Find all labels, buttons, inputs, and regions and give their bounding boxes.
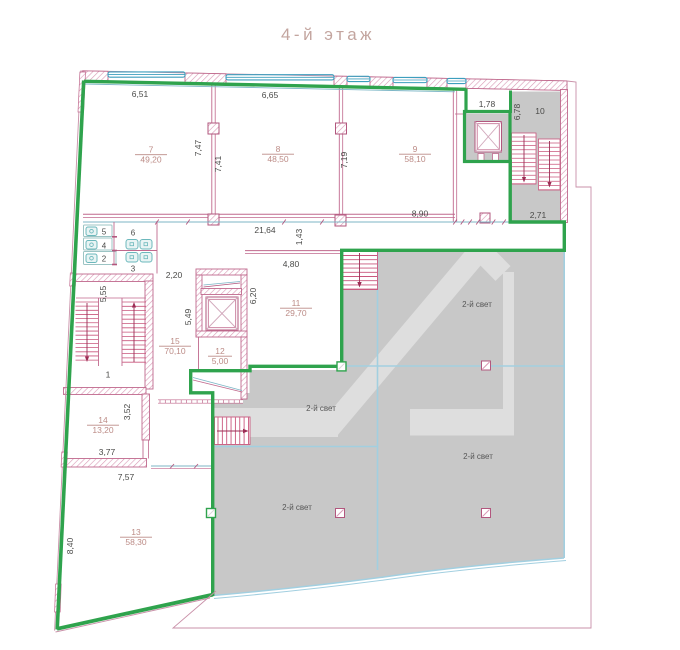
svg-text:8,90: 8,90 [412, 209, 429, 219]
svg-text:2-й свет: 2-й свет [282, 503, 312, 512]
svg-text:8,40: 8,40 [65, 537, 75, 554]
svg-text:12: 12 [215, 346, 225, 356]
svg-text:13: 13 [131, 527, 141, 537]
svg-text:6,20: 6,20 [248, 287, 258, 304]
svg-text:9: 9 [413, 144, 418, 154]
svg-text:6,51: 6,51 [132, 89, 149, 99]
svg-text:14: 14 [98, 415, 108, 425]
svg-text:4-й этаж: 4-й этаж [281, 25, 375, 44]
svg-text:1: 1 [106, 370, 111, 380]
svg-text:48,50: 48,50 [267, 154, 289, 164]
svg-text:11: 11 [292, 298, 301, 308]
svg-text:10: 10 [535, 106, 545, 116]
svg-text:58,30: 58,30 [125, 537, 147, 547]
svg-text:7,57: 7,57 [118, 472, 135, 482]
svg-text:15: 15 [170, 336, 180, 346]
svg-text:5,55: 5,55 [98, 285, 108, 302]
svg-text:6,78: 6,78 [512, 103, 522, 120]
svg-text:5: 5 [102, 228, 107, 237]
svg-text:2: 2 [102, 255, 107, 264]
svg-text:7,19: 7,19 [339, 151, 349, 168]
svg-text:5,00: 5,00 [212, 356, 229, 366]
svg-text:70,10: 70,10 [164, 346, 186, 356]
svg-text:7: 7 [149, 145, 154, 155]
svg-text:3,52: 3,52 [122, 403, 132, 420]
svg-text:3: 3 [131, 265, 136, 274]
svg-text:1,78: 1,78 [479, 99, 496, 109]
svg-text:4: 4 [102, 242, 107, 251]
svg-text:6,65: 6,65 [262, 90, 279, 100]
svg-text:7,41: 7,41 [213, 155, 223, 172]
svg-text:6: 6 [131, 229, 136, 238]
svg-text:2-й свет: 2-й свет [463, 452, 493, 461]
svg-text:49,20: 49,20 [140, 155, 162, 165]
svg-text:2,71: 2,71 [530, 210, 547, 220]
svg-text:5,49: 5,49 [183, 308, 193, 325]
svg-text:58,10: 58,10 [404, 154, 426, 164]
svg-text:1,43: 1,43 [294, 228, 304, 245]
svg-text:4,80: 4,80 [283, 259, 300, 269]
svg-text:3,77: 3,77 [99, 447, 116, 457]
svg-text:2-й свет: 2-й свет [462, 300, 492, 309]
svg-text:2-й свет: 2-й свет [306, 404, 336, 413]
svg-text:7,47: 7,47 [193, 139, 203, 156]
svg-text:29,70: 29,70 [285, 308, 307, 318]
svg-text:2,20: 2,20 [166, 270, 183, 280]
svg-text:8: 8 [276, 144, 281, 154]
svg-text:21,64: 21,64 [254, 225, 276, 235]
svg-text:13,20: 13,20 [92, 425, 114, 435]
